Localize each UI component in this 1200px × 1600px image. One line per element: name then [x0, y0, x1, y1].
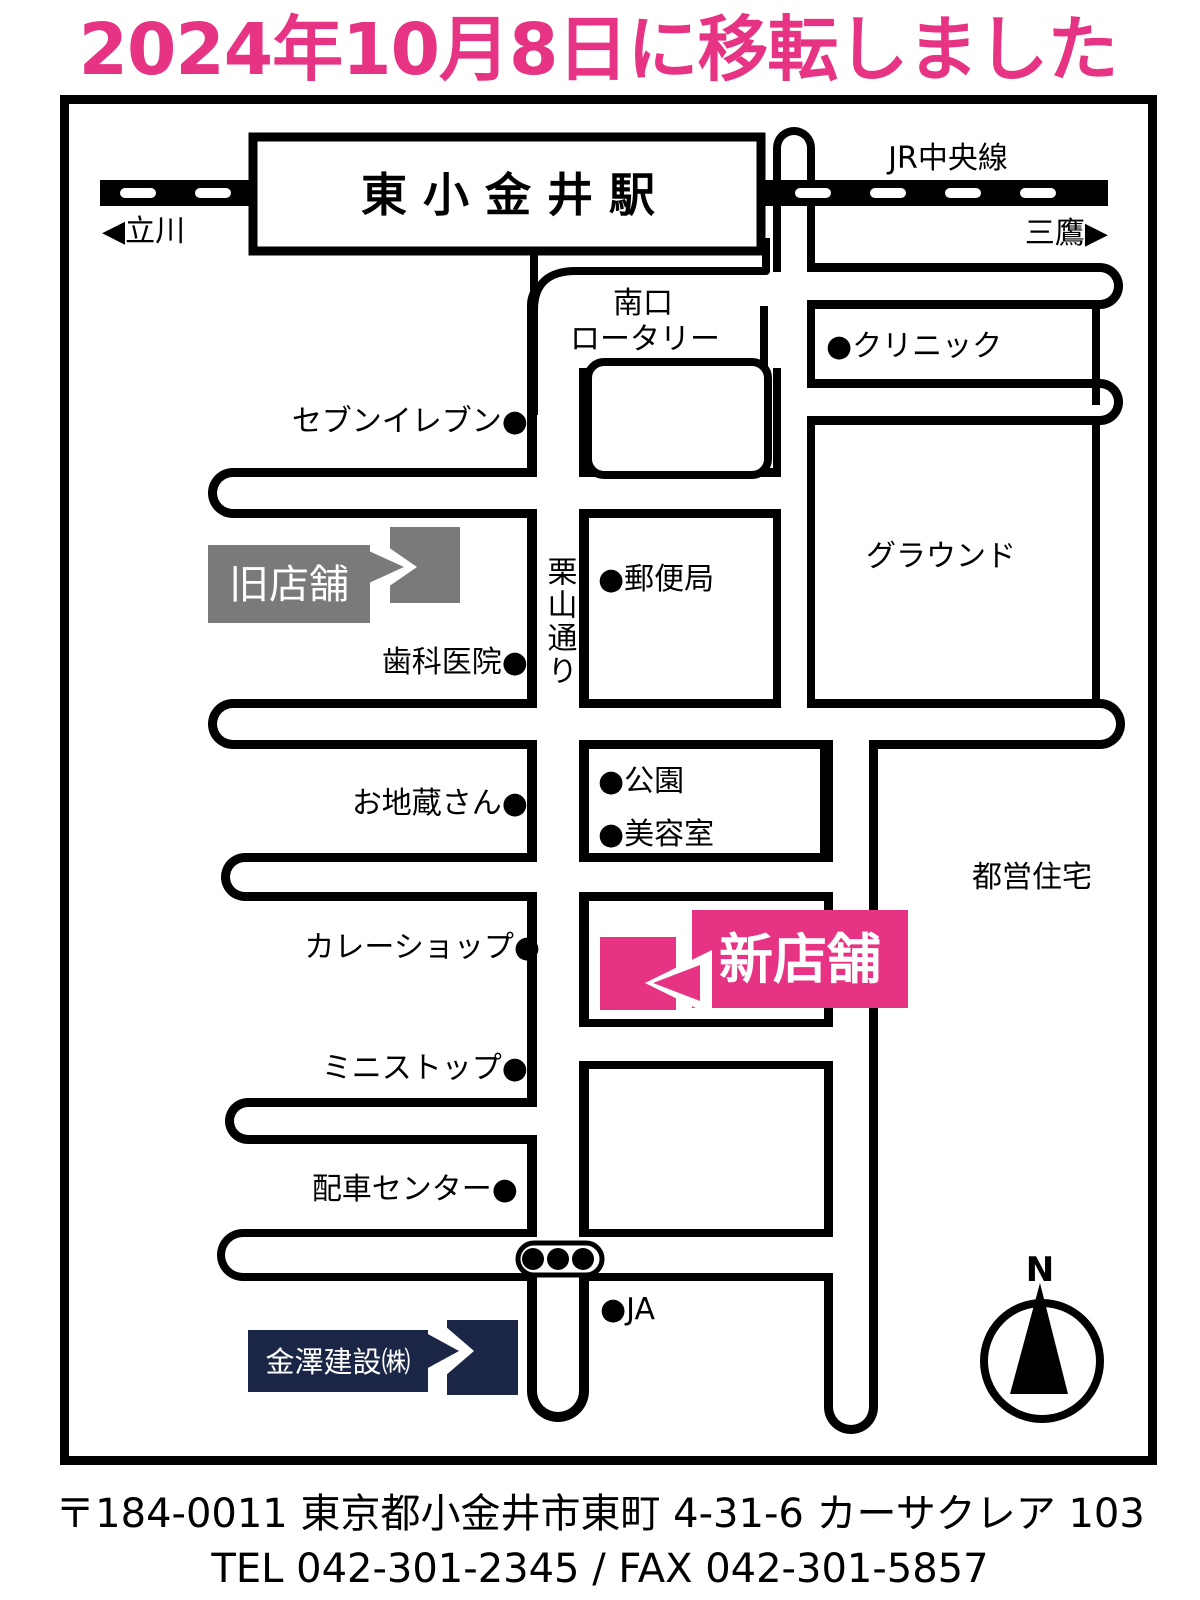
label-post-office: ●郵便局: [598, 562, 714, 597]
footer-address: 〒184-0011 東京都小金井市東町 4-31-6 カーサクレア 103: [55, 1491, 1145, 1537]
label-kuriyama-dori: 栗山通り: [542, 556, 577, 688]
traffic-light-lamp: [547, 1248, 569, 1270]
label-minamiguchi: 南口: [613, 286, 673, 321]
footer-tel-fax: TEL 042-301-2345 / FAX 042-301-5857: [210, 1546, 988, 1592]
label-clinic: ●クリニック: [826, 329, 1002, 364]
label-seven-eleven: セブンイレブン●: [292, 404, 528, 439]
company-label: 金澤建設㈱: [265, 1345, 410, 1379]
access-map: 東小金井駅 旧店舗 金澤建設㈱ 新店舗 N JR中央線 ◀: [0, 0, 1200, 1600]
label-mitaka: 三鷹▶: [1025, 216, 1108, 251]
rotary-island: [588, 362, 768, 475]
label-dispatch-center: 配車センター●: [312, 1172, 518, 1207]
old-store-flag: 旧店舗: [208, 527, 460, 623]
label-curry-shop: カレーショップ●: [304, 930, 540, 965]
label-dental: 歯科医院●: [382, 645, 528, 680]
traffic-light-lamp: [572, 1248, 594, 1270]
label-park: ●公園: [598, 764, 684, 799]
label-tachikawa: ◀立川: [102, 214, 185, 249]
label-jr-line: JR中央線: [886, 141, 1008, 176]
company-flag: 金澤建設㈱: [248, 1320, 518, 1395]
label-ja: ●JA: [600, 1292, 655, 1327]
label-beauty-salon: ●美容室: [598, 817, 714, 852]
new-store-label: 新店舗: [719, 928, 881, 991]
label-ministop: ミニストップ●: [322, 1051, 528, 1086]
traffic-light: [518, 1243, 602, 1275]
label-toei-housing: 都営住宅: [972, 860, 1092, 895]
traffic-light-lamp: [522, 1248, 544, 1270]
old-store-label: 旧店舗: [229, 562, 349, 608]
relocation-map-flyer: 東小金井駅 旧店舗 金澤建設㈱ 新店舗 N JR中央線 ◀: [0, 0, 1200, 1600]
new-store-flag: 新店舗: [600, 910, 908, 1016]
label-ground: グラウンド: [866, 539, 1016, 574]
compass: N: [984, 1250, 1100, 1419]
compass-north-label: N: [1026, 1250, 1054, 1290]
page-title: 2024年10月8日に移転しました: [79, 8, 1118, 91]
label-rotary: ロータリー: [570, 322, 720, 357]
label-ojizosan: お地蔵さん●: [352, 786, 528, 821]
station-name: 東小金井駅: [361, 168, 671, 222]
